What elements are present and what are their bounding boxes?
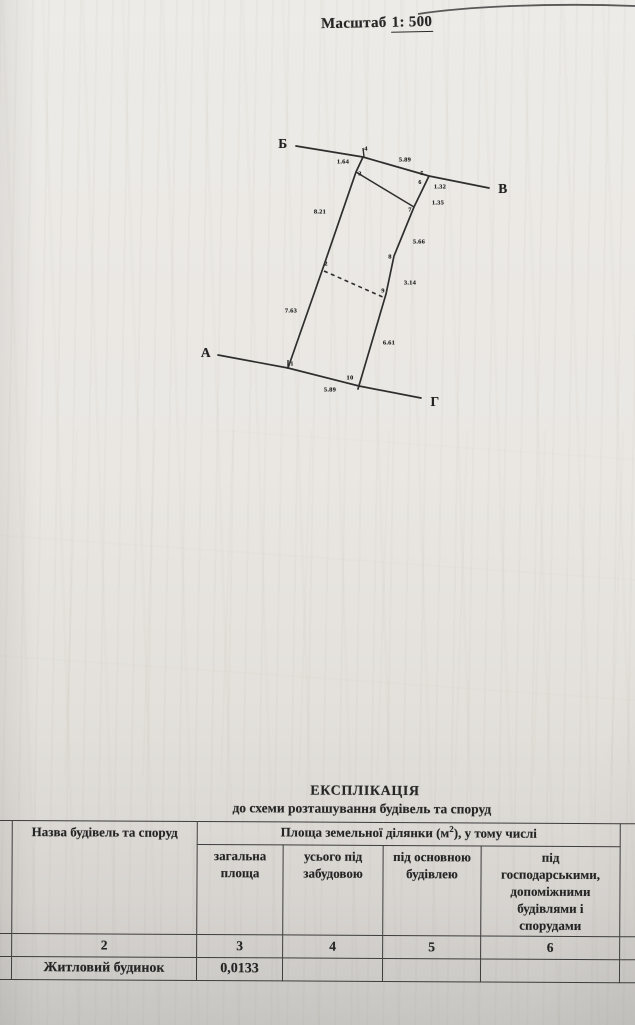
corner-label-V: В [498,181,508,197]
column-numbers-row: 2 3 4 5 6 [0,933,635,960]
measurement-8-9: 3.14 [404,280,416,287]
point-label-10: 10 [347,375,354,382]
page-top-edge-curve [418,5,635,14]
point-label-6: 6 [418,180,421,186]
aux-buildings-area-cell [480,959,619,983]
point-label-3: 3 [358,171,361,178]
building-name-cell: Житловий будинок [11,957,196,981]
boundary-line-A-G [218,355,421,398]
main-building-area-cell [382,958,480,982]
subheader-auxiliary-buildings: під господарськими, допоміжними будівлям… [481,846,621,937]
interior-line-3-7 [356,172,414,207]
subheader-main-building: під основною будівлею [383,845,481,936]
point-label-1: 1 [290,361,293,368]
measurement-5-6: 1.32 [434,184,446,191]
boundary-line-B-V [296,146,489,188]
measurement-9-10: 6.61 [383,340,395,347]
measurement-4-5: 5.89 [399,157,411,164]
point-label-5: 5 [420,171,423,177]
row-number-cell [0,956,12,979]
point-label-9: 9 [381,288,384,295]
subheader-total-built: усього під забудовою [283,845,383,936]
column-number-5: 5 [383,935,481,959]
corner-label-A: А [201,345,211,361]
column-number-6: 6 [481,936,620,960]
scale-label: Масштаб [321,15,387,32]
scale-title: Масштаб 1: 500 [321,14,434,33]
corner-label-G: Г [430,394,439,410]
interior-dashed-line-2-9 [324,271,385,298]
name-column-header: Назва будівель та споруд [12,821,198,935]
area-merged-header: Площа земельної ділянки (м2), у тому чис… [197,821,620,846]
total-area-cell: 0,0133 [196,957,282,980]
area-header-text: Площа земельної ділянки (м2), у тому чис… [281,824,537,840]
cut-right-cell [620,960,635,983]
column-number-3: 3 [197,934,283,957]
column-number-4: 4 [283,935,383,959]
table-row: Житловий будинок 0,0133 [0,956,635,983]
cut-left-column-cell [0,820,12,933]
scale-value: 1: 500 [391,14,434,33]
built-area-cell [282,958,382,982]
measurement-3-2: 8.21 [314,209,326,216]
parcel-right-edge [358,176,429,389]
measurement-2-1: 7.63 [285,308,297,315]
column-number-1-cut [0,933,12,956]
scanned-survey-page: Масштаб 1: 500 Б В А Г 4 3 2 1 5 6 7 8 9… [0,0,635,1025]
explication-table: Назва будівель та споруд Площа земельної… [0,820,635,984]
measurement-3-4: 1.64 [337,159,349,166]
measurement-7-8: 5.66 [413,239,425,246]
explication-title: ЕКСПЛІКАЦІЯ [310,784,419,801]
explication-subtitle: до схеми розташування будівель та споруд [232,800,491,817]
subheader-total-area: загальна площа [197,844,283,934]
measurement-1-10: 5.89 [324,387,336,394]
point-label-2: 2 [324,261,327,268]
corner-label-B: Б [278,136,287,152]
measurement-6-7: 1.35 [432,200,444,207]
point-label-8: 8 [388,254,391,261]
table-header-row: Назва будівель та споруд Площа земельної… [0,820,635,847]
point-label-4: 4 [364,146,367,153]
cut-right-column-cell [620,824,635,937]
point-label-7: 7 [408,207,411,214]
column-number-7-cut [620,937,635,960]
column-number-2: 2 [12,934,197,958]
